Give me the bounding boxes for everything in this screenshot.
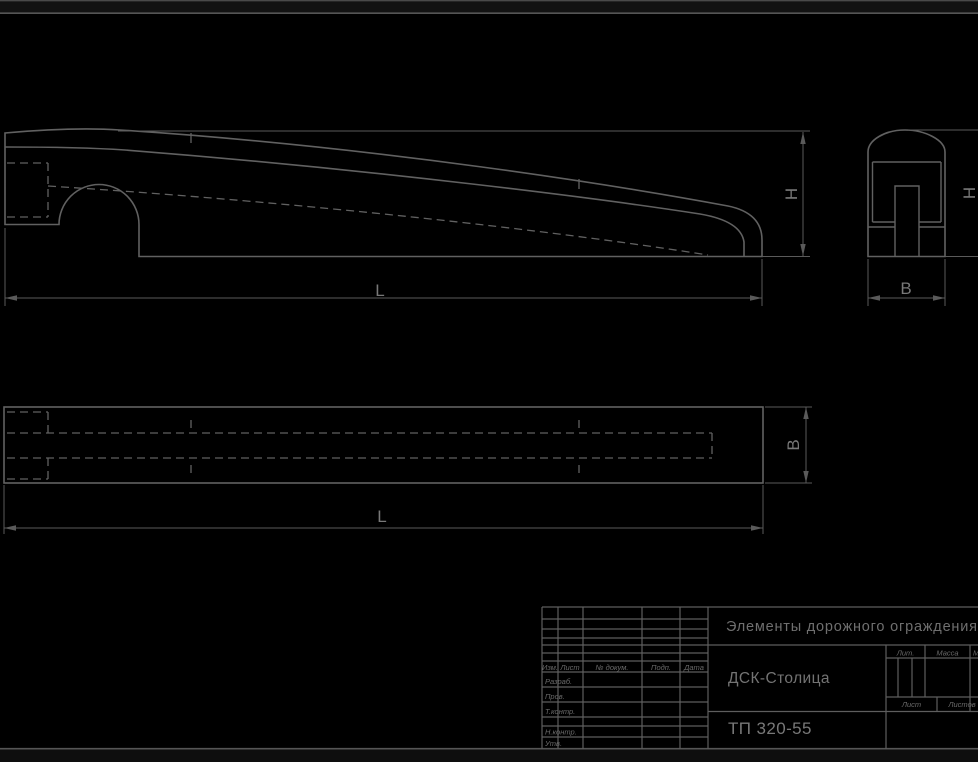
end-view-outline bbox=[868, 130, 945, 257]
side-length-label: L bbox=[375, 281, 384, 300]
sheet-frame bbox=[0, 1, 978, 762]
end-width-label: B bbox=[900, 279, 911, 298]
end-height-label: H bbox=[960, 187, 978, 199]
arrowhead bbox=[5, 295, 17, 300]
tb-col-list: Лист bbox=[559, 663, 579, 672]
drawing-viewer: L H B H L B bbox=[0, 0, 978, 762]
side-view-hidden-pocket bbox=[7, 163, 48, 217]
tb-stat-lit: Лит. bbox=[896, 649, 915, 658]
plan-view-hidden-slot bbox=[7, 433, 712, 458]
plan-view-outline bbox=[4, 407, 763, 483]
tb-col-podp: Подп. bbox=[651, 663, 671, 672]
tb-stat-listov: Листов bbox=[947, 700, 975, 709]
plan-length-label: L bbox=[377, 507, 386, 526]
side-view bbox=[5, 129, 762, 257]
arrowhead bbox=[750, 295, 762, 300]
side-height-label: H bbox=[782, 188, 801, 200]
top-band bbox=[0, 1, 978, 13]
document-code: ТП 320-55 bbox=[728, 719, 812, 738]
end-view-inner-recess bbox=[873, 162, 942, 222]
tb-role-tkontr: Т.контр. bbox=[545, 707, 575, 716]
arrowhead bbox=[868, 295, 880, 300]
side-view-top-chamfer-line bbox=[5, 147, 744, 256]
tb-role-prov: Пров. bbox=[545, 692, 565, 701]
project-title: Элементы дорожного ограждения bbox=[726, 619, 978, 635]
tb-stat-massa: Масса bbox=[936, 649, 958, 658]
plan-width-label: B bbox=[784, 439, 803, 450]
drawing-canvas: L H B H L B bbox=[0, 0, 978, 762]
arrowhead bbox=[933, 295, 945, 300]
plan-view bbox=[4, 407, 763, 483]
plan-view-loop-ticks bbox=[191, 420, 579, 473]
arrowhead bbox=[803, 471, 808, 483]
tb-role-nkontr: Н.контр. bbox=[545, 728, 577, 737]
side-view-hidden-taper-line bbox=[48, 186, 708, 255]
end-view-center-slot bbox=[895, 186, 919, 256]
tb-col-data: Дата bbox=[683, 663, 704, 672]
arrowhead bbox=[751, 525, 763, 530]
arrowhead bbox=[800, 244, 805, 256]
tb-role-razrab: Разраб. bbox=[545, 677, 572, 686]
tb-role-utv: Утв. bbox=[544, 739, 562, 748]
tb-col-izm: Изм. bbox=[542, 663, 558, 672]
tb-stat-list: Лист bbox=[901, 700, 921, 709]
bottom-band bbox=[0, 749, 978, 762]
tb-col-doc: № докум. bbox=[595, 663, 628, 672]
arrowhead bbox=[800, 132, 805, 144]
dimension-labels: L H B H L B bbox=[375, 187, 978, 526]
tb-stat-masshtab: Масштаб bbox=[973, 649, 978, 658]
end-view bbox=[868, 130, 945, 257]
arrowhead bbox=[4, 525, 16, 530]
side-view-outline bbox=[5, 129, 762, 257]
arrowhead bbox=[803, 407, 808, 419]
dimensions bbox=[4, 130, 978, 534]
plan-view-hidden-pockets bbox=[7, 412, 48, 479]
organization-name: ДСК-Столица bbox=[728, 670, 830, 687]
